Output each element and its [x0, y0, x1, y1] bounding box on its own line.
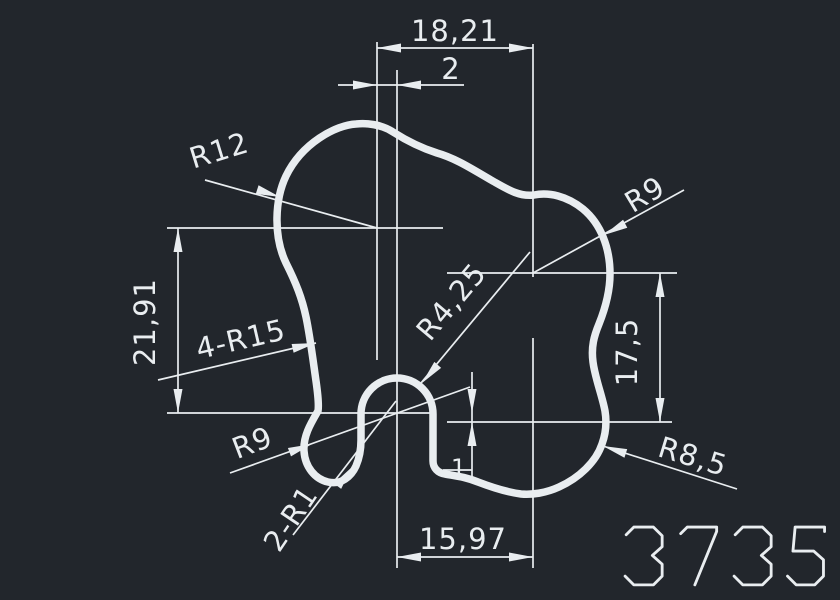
radius-r425-label: R4,25	[409, 256, 493, 347]
dim-total-width-label: 18,21	[411, 14, 499, 48]
arrow-top-offset-right	[397, 81, 421, 90]
arrow-bottom-width-left	[397, 553, 421, 562]
arrow-right-height-bottom	[656, 398, 665, 422]
arrow-small-offset-top	[468, 389, 477, 413]
arrowheads	[174, 44, 665, 562]
radius-r12-label: R12	[185, 125, 252, 175]
dim-left-height-label: 21,91	[128, 278, 162, 366]
dimension-lines	[178, 48, 660, 557]
radius-leaders	[158, 180, 737, 535]
dim-top-offset-label: 2	[441, 52, 460, 86]
dim-right-height-label: 17,5	[610, 318, 644, 387]
radius-r1-label: 2-R1	[257, 479, 325, 557]
dim-small-offset-label: 1	[451, 454, 467, 482]
part-number-digit	[681, 527, 717, 585]
arrow-left-height-top	[174, 228, 183, 252]
part-number-digit	[734, 527, 771, 585]
dim-bottom-width-label: 15,97	[419, 522, 507, 556]
arrow-left-height-bottom	[174, 389, 183, 413]
radius-r9-top-label: R9	[619, 169, 671, 219]
part-number	[625, 527, 824, 585]
arrow-small-offset-bottom	[468, 422, 477, 446]
arrow-right-height-top	[656, 273, 665, 297]
arrow-total-width-left	[377, 44, 401, 53]
part-number-digit	[788, 527, 825, 585]
centerlines-and-extension-lines	[167, 42, 677, 568]
radius-r15-label: 4-R15	[193, 312, 289, 366]
arrow-total-width-right	[509, 44, 533, 53]
arrow-top-offset-left	[353, 81, 377, 90]
arrow-bottom-width-right	[509, 553, 533, 562]
leader-r12	[205, 180, 377, 228]
dimension-labels: 18,21 2 21,91 17,5 15,97 1	[128, 14, 644, 556]
cad-drawing: 18,21 2 21,91 17,5 15,97 1 R12 R9 4-R15 …	[0, 0, 840, 600]
cad-drawing-canvas: 18,21 2 21,91 17,5 15,97 1 R12 R9 4-R15 …	[0, 0, 840, 600]
part-number-digit	[625, 527, 662, 585]
